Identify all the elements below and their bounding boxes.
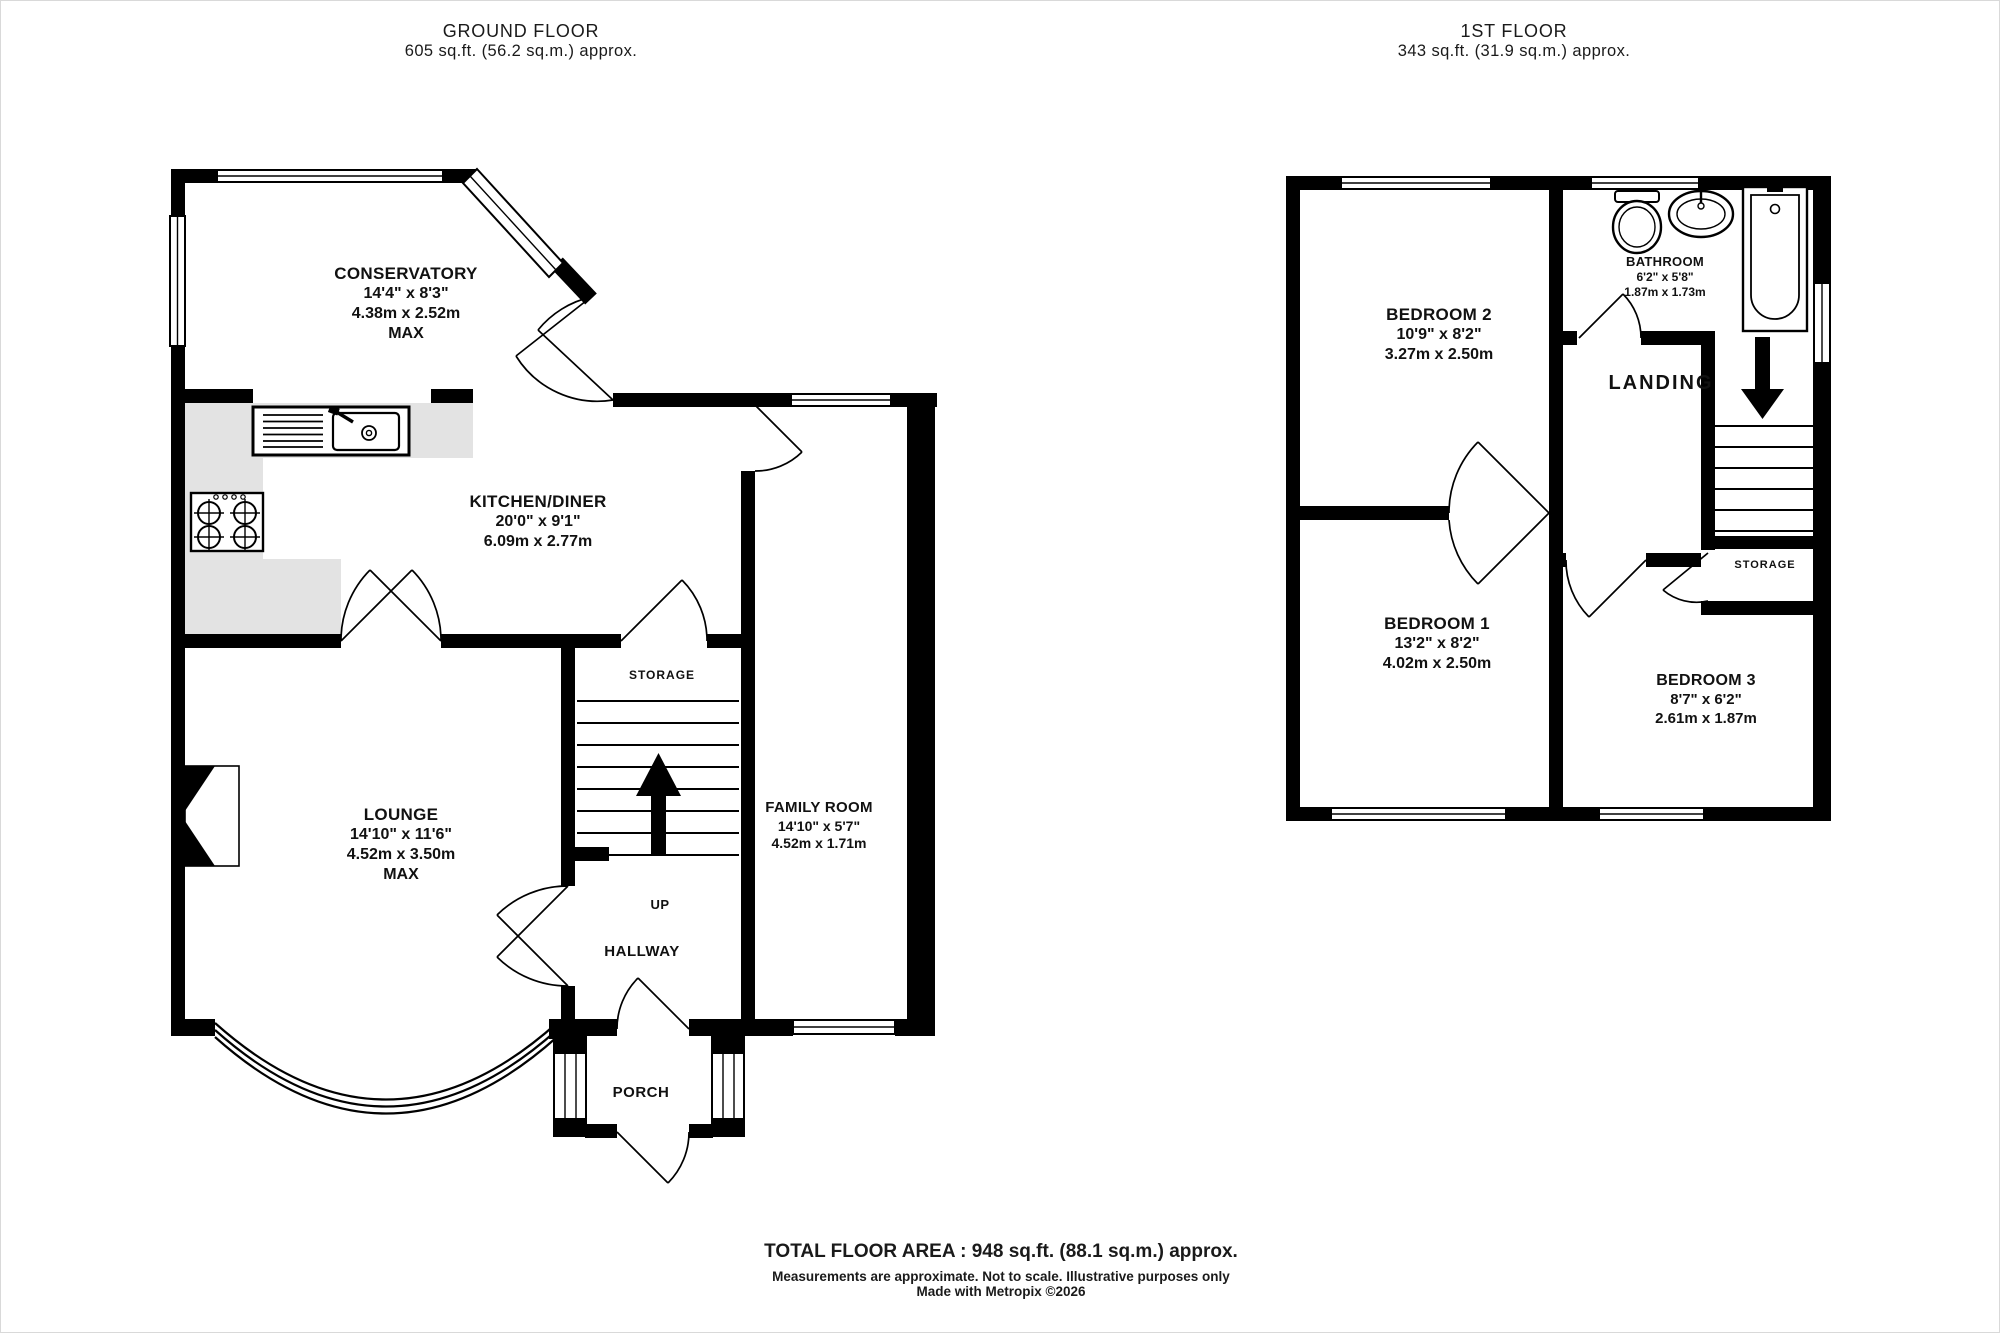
room-label-bedroom-3: BEDROOM 3 8'7" x 6'2" 2.61m x 1.87m	[1655, 671, 1757, 729]
footer: TOTAL FLOOR AREA : 948 sq.ft. (88.1 sq.m…	[764, 1241, 1238, 1299]
credit: Made with Metropix ©2026	[764, 1284, 1238, 1299]
floorplan-drawing	[1, 1, 2000, 1333]
stairs-up	[577, 701, 739, 856]
stairs-down	[1715, 337, 1813, 531]
room-label-hallway: HALLWAY	[604, 943, 679, 962]
ground-floor-title: GROUND FLOOR 605 sq.ft. (56.2 sq.m.) app…	[405, 21, 638, 61]
stairs-up-label: UP	[650, 897, 669, 913]
room-label-kitchen-diner: KITCHEN/DINER 20'0" x 9'1" 6.09m x 2.77m	[469, 491, 606, 552]
total-floor-area: TOTAL FLOOR AREA : 948 sq.ft. (88.1 sq.m…	[764, 1241, 1238, 1263]
down-arrow-shaft	[1755, 337, 1770, 389]
up-arrow-head	[636, 753, 681, 796]
sink-icon	[253, 405, 409, 455]
ground-floor-title-text: GROUND FLOOR	[405, 21, 638, 42]
room-label-porch: PORCH	[613, 1084, 670, 1103]
conservatory-corner-wall	[557, 263, 591, 299]
bathtub-icon	[1743, 185, 1807, 331]
room-label-landing: LANDING	[1608, 371, 1713, 396]
room-label-storage-first: STORAGE	[1734, 559, 1795, 573]
first-floor-area-text: 343 sq.ft. (31.9 sq.m.) approx.	[1398, 42, 1631, 61]
stove-icon	[191, 493, 263, 551]
room-label-bedroom-1: BEDROOM 1 13'2" x 8'2" 4.02m x 2.50m	[1383, 613, 1492, 674]
first-floor-title-text: 1ST FLOOR	[1398, 21, 1631, 42]
room-label-bedroom-2: BEDROOM 2 10'9" x 8'2" 3.27m x 2.50m	[1385, 304, 1494, 365]
room-label-conservatory: CONSERVATORY 14'4" x 8'3" 4.38m x 2.52m …	[334, 263, 477, 344]
ground-floor-plan	[170, 169, 937, 1183]
up-arrow-shaft	[651, 796, 666, 856]
fireplace-icon	[185, 766, 239, 866]
basin-icon	[1669, 191, 1733, 237]
disclaimer: Measurements are approximate. Not to sca…	[764, 1269, 1238, 1284]
room-label-storage-ground: STORAGE	[629, 668, 695, 683]
first-floor-title: 1ST FLOOR 343 sq.ft. (31.9 sq.m.) approx…	[1398, 21, 1631, 61]
floorplan-canvas: GROUND FLOOR 605 sq.ft. (56.2 sq.m.) app…	[0, 0, 2000, 1333]
ground-floor-area-text: 605 sq.ft. (56.2 sq.m.) approx.	[405, 42, 638, 61]
room-label-family-room: FAMILY ROOM 14'10" x 5'7" 4.52m x 1.71m	[765, 799, 872, 853]
room-label-lounge: LOUNGE 14'10" x 11'6" 4.52m x 3.50m MAX	[347, 804, 456, 885]
down-arrow-head	[1741, 389, 1784, 419]
toilet-icon	[1613, 191, 1661, 253]
bay-window	[215, 1023, 557, 1114]
room-label-bathroom: BATHROOM 6'2" x 5'8" 1.87m x 1.73m	[1624, 254, 1705, 300]
